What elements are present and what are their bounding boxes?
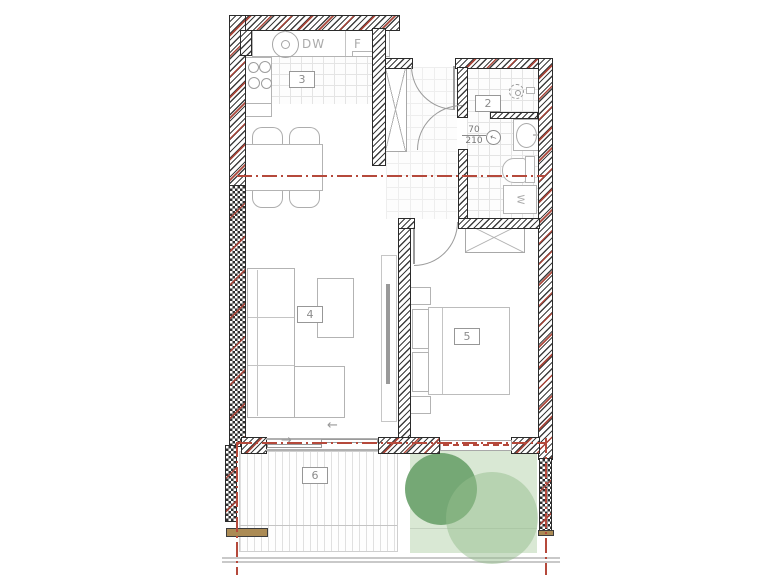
kitchen-sink-drain-icon [281,40,290,49]
room-label-bathroom: 2 [475,95,501,112]
hall-closet [385,67,407,152]
wall-kitchen-hall [372,28,386,166]
section-line-horizontal-upper [237,175,545,177]
tree-canopy-light-icon [446,472,538,564]
sofa-back-line [257,270,258,416]
wall-bottom-left-pier [241,437,267,454]
dining-table [243,144,323,191]
room-label-bedroom: 5 [454,328,480,345]
sofa-chaise [294,366,345,418]
wall-bottom-right-pier [511,437,540,454]
nightstand-1 [410,287,431,305]
room-label-kitchen: 3 [289,71,315,88]
section-line-vertical-right [545,438,547,575]
dining-chair-4 [289,190,320,208]
wall-kitchen-pilaster [240,30,252,56]
washing-machine: W [503,185,537,214]
dining-chair-3 [252,190,283,208]
washing-machine-label: W [514,195,525,205]
extractor-fan-icon [509,84,524,99]
fridge-label: F [354,37,370,51]
wall-bottom-mid-pier [378,437,440,454]
fridge-divider [345,31,346,56]
wall-shower-partition [490,112,538,119]
dining-chair-1 [252,127,283,145]
toilet-cistern [525,156,535,183]
sliding-door-track-bottom [266,449,378,451]
wall-bathroom-bottom [458,218,540,229]
tv-icon [386,284,390,384]
wall-vestibule-stub [385,58,413,69]
toilet-bowl [502,158,526,183]
room-label-terrace: 6 [302,467,328,484]
bathroom-vent-box [526,87,535,94]
sofa-cushion-line-2 [248,365,294,366]
bed-pillow-2 [412,352,429,392]
bathroom-door-dimension: 70 210 [462,125,486,147]
section-line-vertical-left [236,442,238,575]
slide-left-arrow-icon: ← [327,419,345,433]
door-height-label: 210 [465,136,482,146]
wall-living-bedroom [398,228,411,444]
burner-icon-1 [248,62,259,73]
wall-right-exterior [538,58,553,460]
stove-lower-cabinet [245,103,272,117]
floor-plan: DW F W 70 210 → [0,0,780,580]
slide-right-arrow-icon: → [281,434,299,448]
door-swing-icon: → [486,130,501,145]
bed-pillow-1 [412,309,429,349]
section-line-horizontal-lower [237,442,546,444]
terrace-bench [226,528,268,537]
room-label-living: 4 [297,306,323,323]
burner-icon-2 [259,61,271,73]
bed-blanket-line [442,308,443,394]
wall-bathroom-west-lower [458,149,468,219]
dishwasher-label: DW [302,37,334,51]
terrace-deck-joint [240,525,397,526]
burner-icon-4 [261,78,272,89]
burner-icon-3 [248,77,260,89]
bed [428,307,510,395]
sofa [247,268,295,418]
sofa-cushion-line-1 [248,317,294,318]
plot-boundary-line-2 [222,561,560,563]
door-width-label: 70 [462,125,486,136]
nightstand-2 [410,396,431,414]
wall-left-lower [229,185,246,447]
bedroom-window-glazing [443,444,509,446]
dining-chair-2 [289,127,320,145]
bedroom-door-arc [414,222,458,266]
wall-bathroom-top [455,58,545,69]
